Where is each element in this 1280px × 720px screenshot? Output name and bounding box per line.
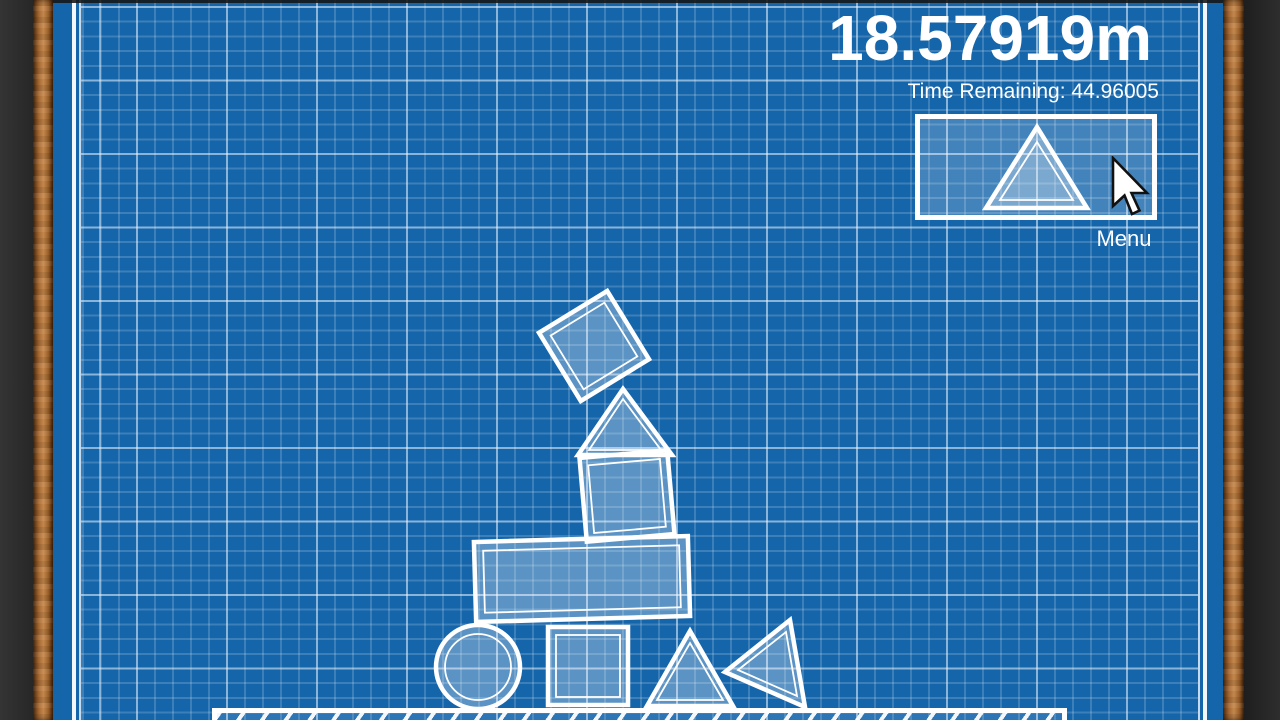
block-square-rotated xyxy=(539,291,649,401)
block-rectangle-wide xyxy=(474,536,690,622)
playfield[interactable] xyxy=(0,0,1280,720)
block-circle xyxy=(436,625,520,709)
time-remaining: Time Remaining: 44.96005 xyxy=(908,80,1159,104)
block-square-stack xyxy=(580,450,675,541)
mouse-cursor-icon xyxy=(1111,156,1153,218)
game-window: 18.57919m Time Remaining: 44.96005 Menu xyxy=(0,0,1280,720)
block-triangle-ground xyxy=(647,631,733,706)
block-square-ground xyxy=(548,627,628,705)
block-triangle-stack xyxy=(578,389,672,455)
tower-height-score: 18.57919m xyxy=(828,5,1152,72)
block-triangle-tipped-left xyxy=(725,620,805,707)
preview-next-triangle xyxy=(986,127,1087,208)
menu-button[interactable]: Menu xyxy=(1084,226,1164,252)
